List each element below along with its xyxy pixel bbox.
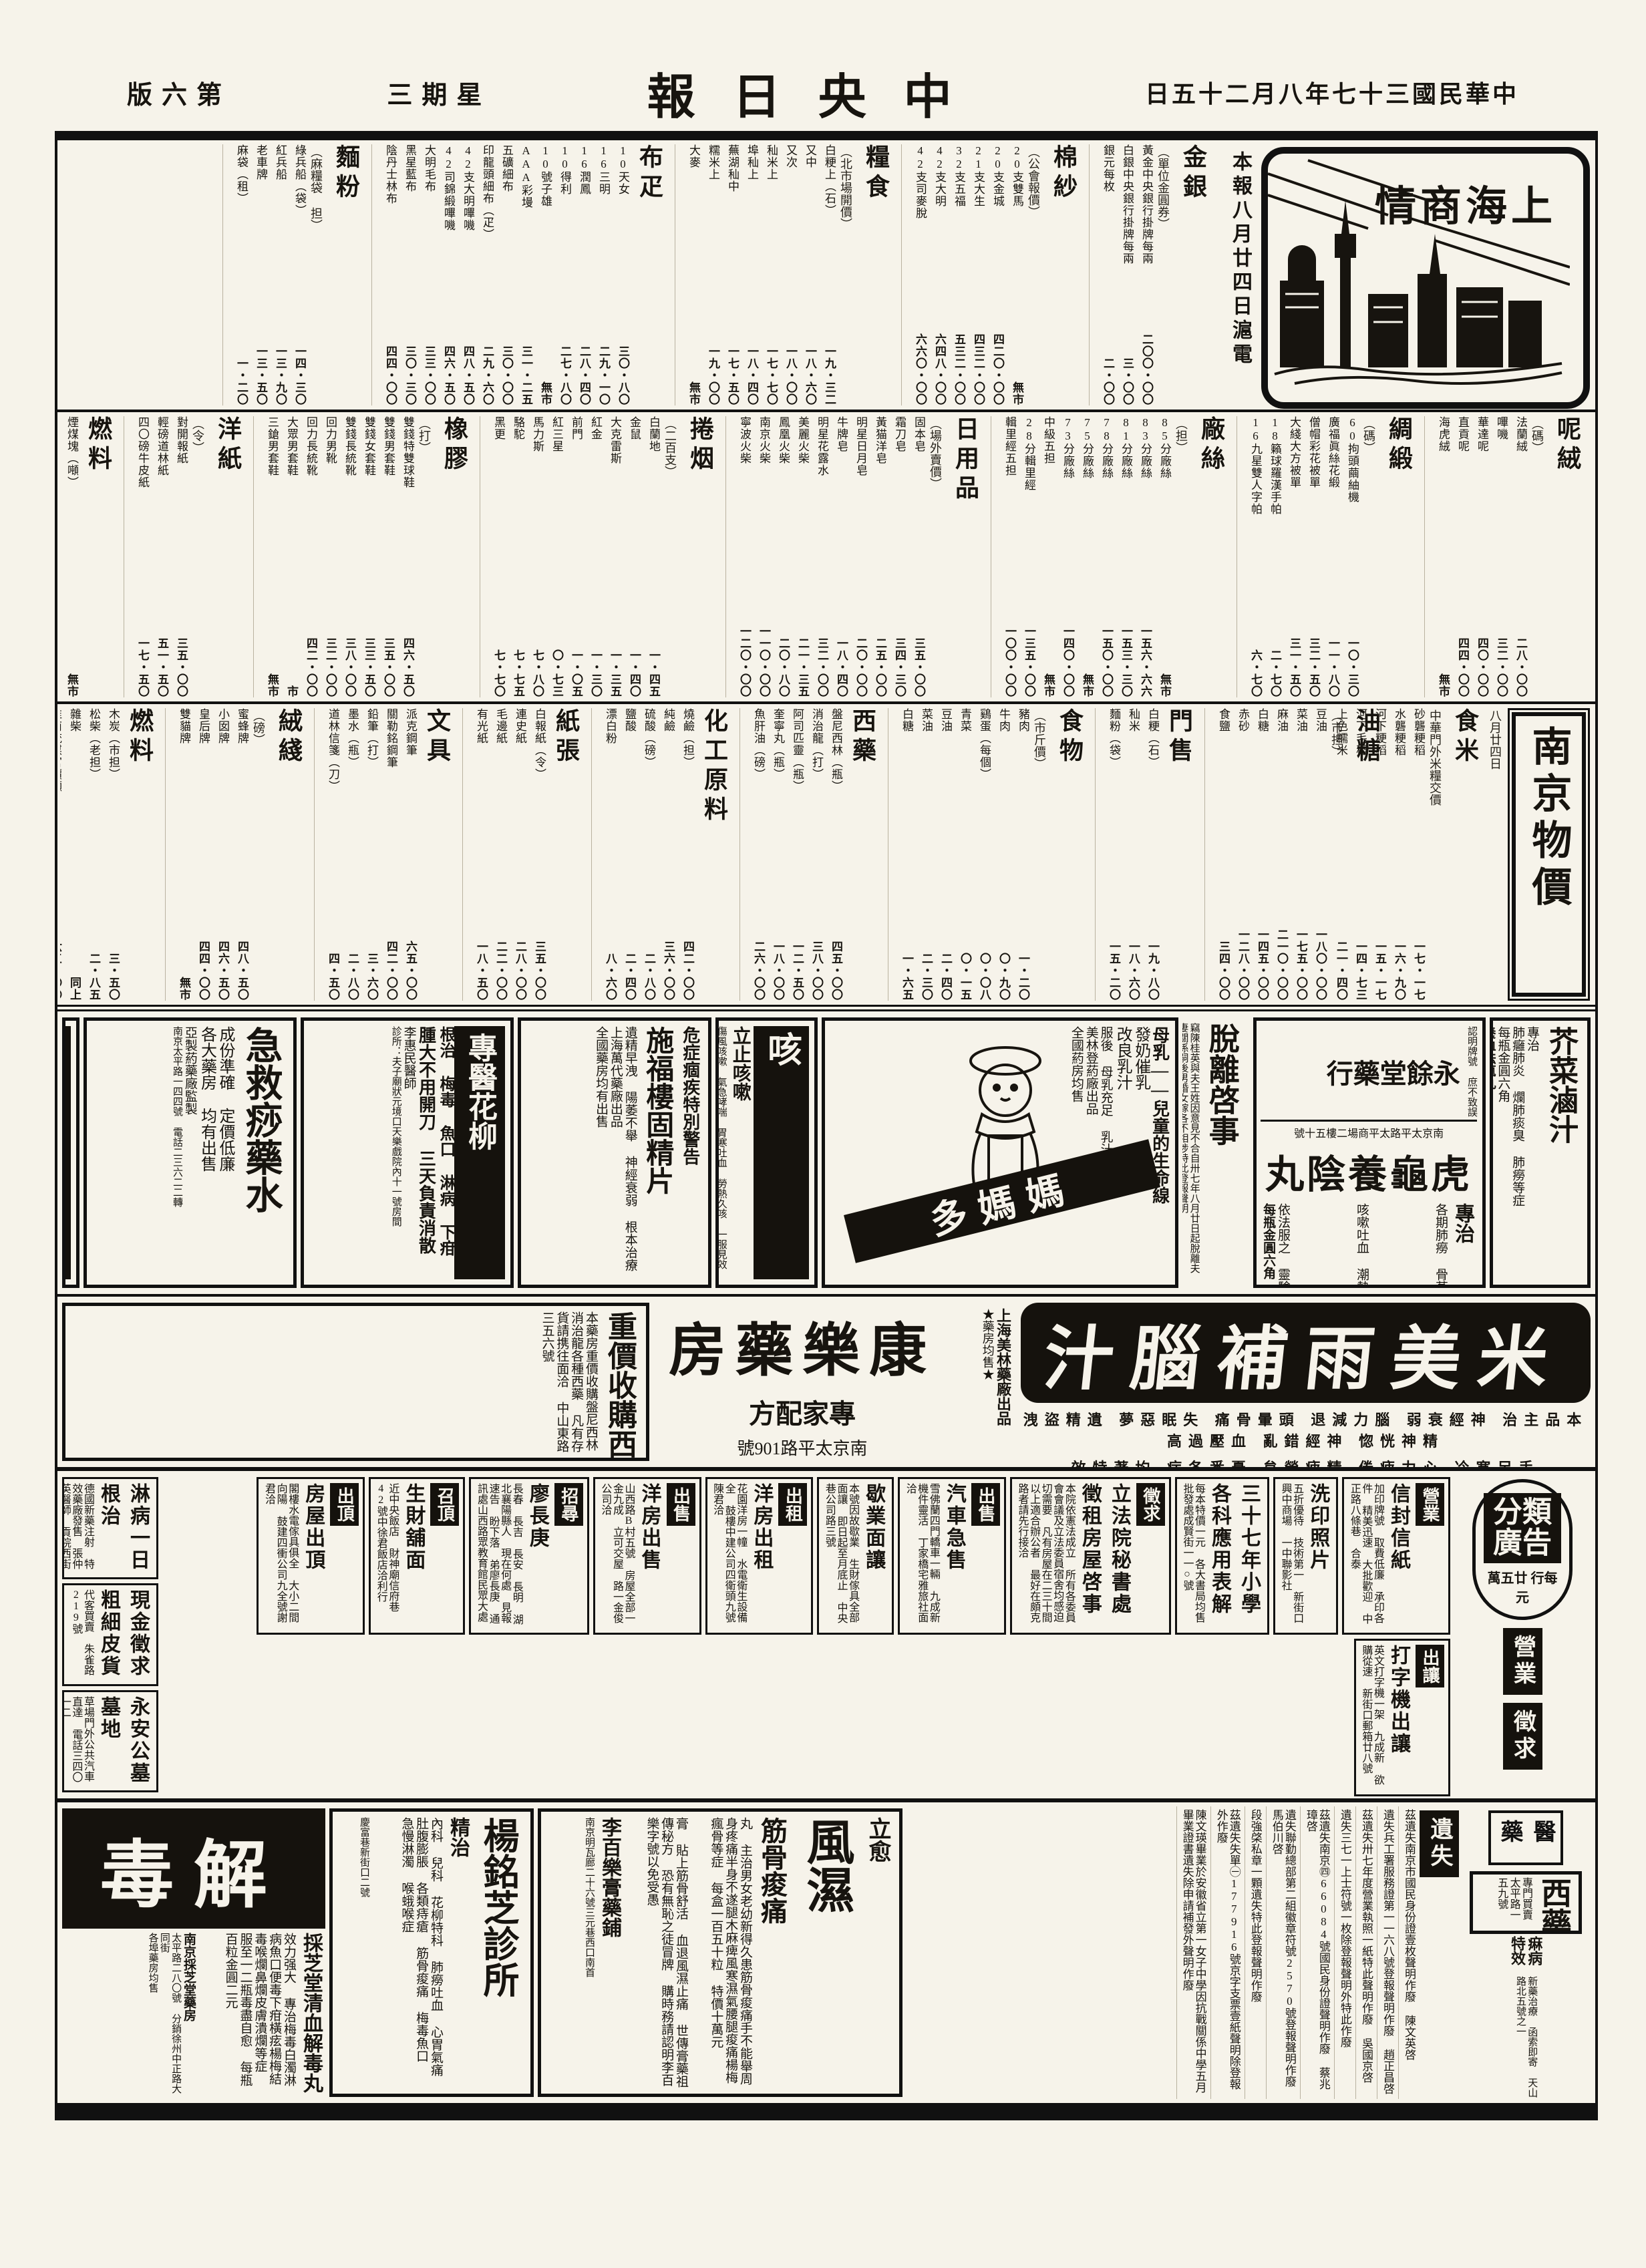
kangle-name: 康樂藥房 [659,1303,946,1387]
masthead: 第六版 星期三 中央日報 中華民國三十七年八月二十五日 [127,59,1519,126]
commodity-price: 三五・〇〇 [376,637,394,697]
commodity-name: 明星花露水 [810,416,828,476]
commodity-price: 一四五・〇〇 [1250,929,1268,1001]
commodity-price: 三三・〇〇 [417,345,435,406]
commodity-price: 三五・〇〇 [907,637,925,697]
commodity-price: 二・八五 [81,953,100,1001]
commodity-name: 麵粉（袋） [1102,708,1120,768]
commodity-price: 一七・五〇 [130,637,148,697]
ad-vd-cure-all: 花柳淋濁 包治 根治 魚口 淋濁 梅毒 下疳 睾丸炎 急慢淋濁當天止濁 德國藥品… [62,1017,79,1288]
market-section-items: 黃金中央銀行掛牌每兩二〇〇・〇〇白銀中央銀行掛牌每兩三・〇〇銀元每枚二・〇〇 [1095,144,1153,406]
classified-body: 雪佛蘭四門轎車一輛 九成新 機件靈活 丁家橋宅雅旅社面洽 [904,1483,939,1629]
market-section: 捲烟（二百支）白蘭地一・四五金鼠一・四〇大克雷斯一・三五紅金一・三〇前門一・〇五… [480,416,725,697]
price-item: 蕪湖秈中一七・五〇 [720,144,738,406]
commodity-name: 魚肝油（磅） [746,708,764,780]
commodity-name: 直貢呢 [1450,416,1468,452]
commodity-name: 煙煤塊（噸） [60,416,77,488]
classified-cell: 歇業面讓本號因故歇業 生財傢具全部面讓 即日起至月底止 中央巷公司路三號 [817,1477,894,1635]
nanjing-price-box: 南京物價 八月廿四日 食米 中華門外米糧交價 砂礱粳稻一七・一七水礱粳稻一六・九… [1392,708,1593,1001]
price-item: 菜油一七五・〇〇 [1289,708,1307,1001]
classified-cell: 召頂生財舖面近中央飯店 財神廟信府巷42號中徐君飯店洽利行 [369,1477,465,1635]
xiyao-addr: 太平路一五九號 [1495,1877,1520,1928]
commodity-name: 豆油 [1308,708,1326,732]
price-item: 煙煤塊（噸）無市 [60,416,77,697]
commodity-name: 16潤鳳 [572,144,590,195]
commodity-price: 四二・〇〇 [675,941,693,1001]
market-section-title: 紙張 [548,708,583,1001]
price-item: 20支金城四二〇・〇〇 [985,144,1003,406]
commodity-price: 一四・七三 [1348,941,1366,1001]
commodity-name: 鷄蛋（每個） [972,708,990,780]
commodity-price: 六・七〇 [1243,649,1261,697]
classified-title: 打字機出讓 [1383,1645,1413,1790]
market-section-note: （麻糧袋 担） [307,146,325,404]
commodity-price: 一一・八〇 [1321,637,1339,697]
commodity-name: 關勒銘鋼筆 [379,708,397,768]
ad-jiecai-luzhi: 芥菜滷汁 專治 肺癰肺炎 爛肺痰臭 肺癆等症 每瓶金圓六角 養血祛瘋丸 專治 筋… [1490,1017,1591,1288]
classified-body: 德國新藥注射 特效藥廠發售 張仲英醫師 貢院西街87號 [62,1483,94,1573]
commodity-name: 木炭（市担） [101,708,119,780]
nanjing-rice-items: 砂礱粳稻一七・一七水礱粳稻一六・九〇河下粳稻一五・一七河下毛稻一四・七三上色糯米… [1328,708,1425,1001]
brain-tonic-banner: 米美雨補腦汁 [1021,1303,1591,1403]
price-item: 陰丹士林布四四・〇〇 [378,144,396,406]
commodity-name: 菜油 [1289,708,1307,732]
mamado-slogan: 母乳——兒童的生命線 [1150,1026,1170,1279]
lost-notice: 陳文瑛畢業於安徽省立第一女子中學因抗戰關係中學五月畢業證書遺失除申請補發外聲明作… [1176,1806,1210,2099]
market-sections-row1: 金銀（單位金圓券）黃金中央銀行掛牌每兩二〇〇・〇〇白銀中央銀行掛牌每兩三・〇〇銀… [60,144,1218,406]
commodity-price: 二〇・八〇 [771,637,789,697]
commodity-name: 大麥 [681,144,699,168]
commodity-name: 黃金中央銀行掛牌每兩 [1134,144,1152,265]
commodity-name: 81分廠絲 [1114,416,1132,479]
market-section-title: 捲烟 [683,416,717,697]
price-item: 豆油一八〇・〇〇 [1308,708,1326,1001]
zhuanyi-title: 專醫花柳 [454,1026,505,1279]
market-section: 食物（市斤價）豬肉一・二〇牛肉〇・九〇鷄蛋（每個）〇・〇八青菜〇・一五豆油二・四… [888,708,1095,1001]
market-section-note: （單位金圓券） [1154,146,1172,404]
classified-title: 永安公墓 墓地 [94,1696,152,1786]
classified-cell: 招尋廖長庚長春 長吉 長安 長明 湖北襄陽縣人 現在何處 見報速告 盼下落 弟廖… [469,1477,589,1635]
market-section-items: 固本皂三五・〇〇霜刀皂三四・三〇黃猫洋皂二五・〇〇明星日月皂二〇・〇〇牛牌皂一八… [731,416,925,697]
lost-notice: 茲遺失卅七年度營業執照一紙特此聲明作廢 吳國京啓 [1355,1806,1377,2099]
commodity-price: 三二・〇〇 [318,637,336,697]
classified-left-cell: 淋病一日根治德國新藥注射 特效藥廠發售 張仲英醫師 貢院西街87號 [62,1477,158,1579]
market-sections-row3: 油糖（市担）豆油一八〇・〇〇菜油一七五・〇〇麻油二一〇・〇〇白糖一四五・〇〇赤砂… [60,708,1392,1001]
commodity-name: 南京火柴 [752,416,770,464]
jijiu-title: 急救痧藥水 [234,1026,288,1279]
tuoli-body: 竊陳桂英與夫王姓因意見不合自卅七年八月廿日起脫離夫妻關係嗣後男婚女嫁各不相涉特此… [1182,1023,1200,1283]
commodity-price: 一〇・三〇 [1340,637,1358,697]
price-item: 10號子雄無市 [533,144,551,406]
commodity-price: 二〇〇・〇〇 [1134,333,1152,406]
ad-brain-tonic: 米美雨補腦汁 本品主治 神經衰弱 腦力減退 頭暈骨痛 失眠惡夢 遺精盜洩 精神恍… [1021,1303,1591,1462]
fengshi-big2: 筋骨痠痛 [752,1817,791,2088]
classified-rate-value: 每行 廿五萬元 [1482,1567,1562,1606]
issue-date: 中華民國三十七年八月二十五日 [1145,75,1519,110]
commodity-name: 黑更 [486,416,504,440]
lost-notice: 遺失三七一上士符號一枚除登報聲明外特此作廢 [1334,1806,1355,2099]
commodity-price: 四三二・〇〇 [966,333,984,406]
ad-band-2: 米美雨補腦汁 本品主治 神經衰弱 腦力減退 頭暈骨痛 失眠惡夢 遺精盜洩 精神恍… [57,1297,1595,1472]
classified-title: 洗印照片 [1303,1483,1332,1629]
market-section: 橡膠（打）雙錢特雙球鞋四六・五〇雙錢男套鞋三五・〇〇雙錢女套鞋三三・五〇雙錢長統… [253,416,480,697]
market-section-items: 白粳（石）一九・八〇秈米一八・六〇麵粉（袋）一五・二〇 [1101,708,1159,1001]
fengshi-gao: 膏 貼上筋骨舒活 血退風濕止痛 世傳膏藥祖傳秘方 恐有無恥之徒冒牌 購時務請認明… [624,1817,688,2088]
price-item: 海虎絨無市 [1431,416,1449,697]
lost-notices: 茲遺失南京市國民身份證壹枚聲明作廢 陳文英啓遺失兵工署服務證第一一六八號登報聲明… [904,1806,1420,2099]
commodity-price: 四八・五〇 [456,345,474,406]
market-section-note: （打） [416,418,433,696]
hugu-note: 依法服之 靈驗如神 [1275,1203,1290,1288]
classified-body: 近中央飯店 財神廟信府巷42號中徐君飯店洽利行 [375,1483,398,1629]
price-item: 白粳上（石）一九・三二 [817,144,835,406]
commodity-price: 一・四〇 [622,649,640,697]
ad-separation-notice: 脫離啓事 竊陳桂英與夫王姓因意見不合自卅七年八月廿日起脫離夫妻關係嗣後男婚女嫁各… [1182,1017,1249,1288]
market-section-items: 盤尼西林（瓶）四五・〇〇消治龍（打）三八・〇〇阿司匹靈（瓶）一二・五〇奎寧丸（瓶… [746,708,842,1001]
hugu-product: 虎龜養陰丸 [1261,1143,1477,1199]
market-section-items: 法蘭絨二八・〇〇嗶嘰三二・〇〇華達呢四〇・〇〇直貢呢四四・〇〇海虎絨無市 [1430,416,1527,697]
commodity-price: 無市 [681,381,699,406]
commodity-name: 五礦細布 [494,144,512,192]
commodity-name: 又中 [798,144,816,168]
market-section: 棉紗（公會報價）20支雙馬無市20支金城四二〇・〇〇21支大生四三二・〇〇32支… [901,144,1089,406]
jijiu-maker: 亞製葯藥廠監製 [182,1026,197,1279]
market-section-note: （場外賣價） [927,418,944,696]
price-item: 大明毛布三三・〇〇 [417,144,435,406]
market-section-note: （令） [189,418,206,696]
classified-label: 招尋 [554,1483,583,1526]
price-item: 黃金中央銀行掛牌每兩二〇〇・〇〇 [1134,144,1152,406]
nanjing-note: 中華門外米糧交價 [1426,709,1444,999]
commodity-price: 三〇・八〇 [611,345,629,406]
commodity-name: 60拘頭繭紬機 [1340,416,1358,503]
market-section: 綢緞（碼）60拘頭繭紬機一〇・三〇廣福眞絲花緞一一・八〇僧帽彩花被單三二・五〇大… [1237,416,1424,697]
commodity-name: 白粳上（石） [817,144,835,216]
cough-title: 立止咳嗽 [727,1026,754,1279]
price-item: 麻油二一〇・〇〇 [1269,708,1287,1001]
commodity-price: 一九・〇〇 [701,345,719,406]
commodity-price: 三四・〇〇 [1211,941,1229,1001]
tab-business: 營業 [1503,1628,1542,1695]
price-item: 10天女三〇・八〇 [611,144,629,406]
market-section-note: （公會報價） [1025,146,1042,404]
price-item: 青菜〇・一五 [953,708,971,1001]
commodity-price: 二八・〇〇 [508,941,526,1001]
price-item: 大麥無市 [681,144,699,406]
price-item: 松柴（老担）二・八五 [81,708,100,1001]
cough-body: 傷風咳嗽 氣急哮喘 胃寒吐血 勞熱久咳 一服見效 [715,1026,727,1279]
classifieds-grid: 營業信封信紙加印牌號 取費低廉 承印各件 精美迅速 大批歡迎 中正路八條巷 合泰… [160,1475,1452,1794]
market-section-items: 煙煤塊（噸）無市烏炭（担）七・五〇煤球（担）五・六〇白炭（担）三六・七〇 [60,416,78,697]
classified-cell: 洗印照片五折優待 技術第一 新街口興中商場 一中聯影社 [1273,1477,1338,1635]
market-section-items: 木炭（市担）三・五〇松柴（老担）二・八五雜柴同上淮南統煤官價噸六三・〇〇汽油（加… [60,708,120,1001]
market-sections-row2: 呢絨（碼）法蘭絨二八・〇〇嗶嘰三二・〇〇華達呢四〇・〇〇直貢呢四四・〇〇海虎絨無… [60,416,1593,697]
commodity-price: 二・〇〇 [1096,357,1114,406]
commodity-name: 28分輯里經 [1017,416,1035,491]
commodity-price: 三〇・三〇 [397,345,416,406]
commodity-price: 同上 [62,977,80,1001]
commodity-price: 五三二・〇〇 [947,333,965,406]
price-item: 墨水（瓶）二・八〇 [340,708,358,1001]
commodity-name: 老車牌 [249,144,267,180]
mabing-title: 痳病特效 [1509,1936,1543,1976]
price-item: 又中一八・六〇 [798,144,816,406]
shifulou-product: 施福樓固精片 [637,1026,678,1279]
commodity-price: 一五・一七 [1367,941,1385,1001]
commodity-name: 牛牌皂 [829,416,847,452]
commodity-name: 鉛筆（打） [359,708,377,768]
commodity-price: 一・三五 [603,649,621,697]
market-section-items: 對開報紙三五・〇〇輕磅道林紙五一・五〇四〇磅牛皮紙一七・五〇 [130,416,188,697]
commodity-name: 黃猫洋皂 [868,416,886,464]
price-item: 白粳（石）一九・八〇 [1140,708,1158,1001]
commodity-name: 豬肉 [1011,708,1029,732]
price-item: 雙錢長統靴三八・〇〇 [337,416,355,697]
lost-notice: 茲遺失南京㊃66084號國民身份證聲明作廢 蔡兆璋啓 [1300,1806,1334,2099]
commodity-name: 食鹽 [1211,708,1229,732]
commodity-name: 菜油 [914,708,932,732]
price-item: 直貢呢四四・〇〇 [1450,416,1468,697]
ad-kangle-pharmacy: 康樂藥房 專家配方 南京太平路109號 [653,1303,951,1462]
lost-notice: 茲遺失失單㊀177916號京字支票壹紙聲明除登報外作廢 [1210,1806,1245,2099]
shanghai-report-box: 上海商情 本報八月廿四日滬電 [1218,144,1593,406]
commodity-price: 一三・五〇 [249,345,267,406]
fengshi-addr: 南京明瓦廊二十六號三元巷西口南首 [583,1817,595,2088]
ad-buy-western-medicine: 重價收購西藥 本藥房重價收購盤尼西林消治龍各種西藥 凡有存貨請携往面洽 中山東路… [62,1303,649,1462]
market-section-note: （市斤價） [1031,709,1048,999]
price-item: 白糖一四五・〇〇 [1250,708,1268,1001]
commodity-name: 奎寧丸（瓶） [766,708,784,780]
commodity-price: 一五六・六六 [1133,625,1151,697]
price-item: 河下粳稻一五・一七 [1367,708,1385,1001]
commodity-name: 有光紙 [469,708,487,744]
commodity-name: 18籟球羅漢手帕 [1263,416,1281,515]
price-item: 秈米上一七・七〇 [759,144,777,406]
classified-title: 生財舖面 [398,1483,428,1629]
price-item: 輕磅道林紙五一・五〇 [150,416,168,697]
commodity-name: 連史紙 [508,708,526,744]
caizhitang-addr: 太平路二八〇號 分銷徐州中正路大同街 [158,1933,182,2097]
commodity-name: 前門 [564,416,582,440]
price-item: 小囡牌四六・五〇 [210,708,228,1001]
price-item: AAA彩墁三一・二五 [514,144,532,406]
commodity-name: 水礱粳稻 [1387,708,1405,756]
commodity-name: 牛肉 [991,708,1009,732]
price-item: 菜油二・三〇 [914,708,932,1001]
commodity-price: 三六・〇〇 [656,941,674,1001]
classified-label: 出租 [778,1483,807,1526]
price-item: 派克鋼筆六五・〇〇 [398,708,416,1001]
cough-big-char: 咳 [754,1026,809,1279]
price-item: 阿司匹靈（瓶）一二・五〇 [785,708,803,1001]
classified-cell: 出售汽車急售雪佛蘭四門轎車一輛 九成新 機件靈活 丁家橋宅雅旅社面洽 [898,1477,1006,1635]
price-item: 魚肝油（磅）二六・〇〇 [746,708,764,1001]
commodity-name: 42支司麥脫 [908,144,926,219]
commodity-name: 16九星雙人字帕 [1243,416,1261,515]
price-item: 豬肉一・二〇 [1011,708,1029,1001]
commodity-name: 固本皂 [907,416,925,452]
commodity-price: 無市 [533,381,551,406]
classified-cell: 營業信封信紙加印牌號 取費低廉 承印各件 精美迅速 大批歡迎 中正路八條巷 合泰 [1342,1477,1450,1635]
commodity-price: 一五・二〇 [1102,941,1120,1001]
classified-label: 出讓 [1416,1645,1444,1687]
commodity-price: 一八・〇〇 [778,345,796,406]
classified-label: 出頂 [330,1483,359,1526]
price-item: 16三明二九・一〇 [591,144,609,406]
market-section-title: 呢絨 [1550,416,1585,697]
minao-maker-note: ★藥房均售★ [981,1308,995,1456]
market-section-title: 布疋 [632,144,667,406]
zhuanyi-claim: 腫大不用開刀 三天負責消散 [416,1026,436,1279]
price-item: 固本皂三五・〇〇 [907,416,925,697]
commodity-price: 三四・三〇 [887,637,905,697]
price-item: 麻袋（租）一・二〇 [229,144,247,406]
price-item: 42司錦緞嗶嘰四六・五〇 [436,144,454,406]
price-item: 麵粉（袋）一五・二〇 [1102,708,1120,1001]
commodity-price: 二・三〇 [914,953,932,1001]
commodity-name: 42司錦緞嗶嘰 [436,144,454,231]
commodity-name: 消治龍（打） [804,708,822,780]
classified-body: 每本特價一元 各大書局均售 批發處成賢街一一○號 [1181,1483,1204,1629]
tab-lost: 遺失 [1420,1810,1459,1877]
price-item: 18籟球羅漢手帕二・七〇 [1263,416,1281,697]
commodity-price: 一二・五〇 [785,941,803,1001]
hugu-spec: 專治 [1448,1203,1477,1288]
commodity-name: 河下粳稻 [1367,708,1385,756]
price-item: 鳳凰火柴二〇・八〇 [771,416,789,697]
commodity-price: 三二・〇〇 [810,637,828,697]
commodity-name: 21支大生 [966,144,984,207]
brain-tonic-line2: 手足寒冷 心力疲倦 精疲勞怠 憂悉各症 均著特效 [1021,1456,1591,1472]
commodity-price: 四四・〇〇 [1450,637,1468,697]
commodity-name: 10天女 [611,144,629,195]
commodity-name: 又次 [778,144,796,168]
classified-title: 歇業面讓 [858,1483,888,1629]
commodity-price: 三二・五〇 [1301,637,1319,697]
price-item: 大綫大方被單三一・五〇 [1282,416,1300,697]
price-item: 10得利二七・八〇 [552,144,570,406]
commodity-price: 三・五〇 [101,953,119,1001]
market-section-items: 蜜蜂牌四八・五〇小囡牌四六・五〇皇后牌四四・〇〇雙貓牌無市 [171,708,249,1001]
hugu-list2: 咳嗽吐血 潮熱顴紅 咽喉失音 肺痿胸脇悶痛 心跳食少 乾血女癆 一切虛癆串核 [1290,1203,1369,1288]
bottom-rail: 醫藥 西藥 專門買賣 太平路一五九號 痳病特效 新藥治療 函索即寄 天山路北五號… [1459,1806,1593,2099]
hugu-list1: 各期肺癆 骨蒸盜汗 口乾舌燥 爛肺痰臭 氣急失眠 腰痠背痛 頭眩目花 百日童癆 … [1369,1203,1448,1288]
commodity-price: 二九・六〇 [475,345,493,406]
commodity-name: 20支金城 [985,144,1003,207]
commodity-name: 16三明 [591,144,609,195]
price-item: 綠兵船（袋）一四・三〇 [287,144,305,406]
commodity-price: 無市 [1075,673,1093,697]
commodity-price: 一三五・〇〇 [1017,625,1035,697]
commodity-price: 二〇・〇〇 [848,637,866,697]
classifieds-rail: 分類廣告 每行 廿五萬元 營業 徵求 [1452,1475,1593,1794]
commodity-name: 白粳（石） [1140,708,1158,768]
commodity-price: 無市 [1005,381,1023,406]
market-section-items: 白蘭地一・四五金鼠一・四〇大克雷斯一・三五紅金一・三〇前門一・〇五紅三星〇・七三… [486,416,660,697]
market-section-note: （碼） [1360,418,1377,696]
ad-yangmingzhi-clinic: 楊銘芝診所 精治 內科 兒科 花柳特科 肺癆吐血 心胃氣痛 肚腹膨脹 各類痔瘡 … [329,1808,534,2097]
commodity-name: 大明毛布 [417,144,435,192]
commodity-price: 六三・〇〇 [60,941,61,1001]
commodity-name: 美麗火柴 [790,416,808,464]
shifulou-maker: 上海萬代藥廠出品 [608,1026,623,1279]
price-item: 雙錢男套鞋三五・〇〇 [376,416,394,697]
commodity-name: 法蘭絨 [1508,416,1526,452]
commodity-price: 〇・七三 [544,649,562,697]
bottom-ad-band: 醫藥 西藥 專門買賣 太平路一五九號 痳病特效 新藥治療 函索即寄 天山路北五號… [57,1802,1595,2103]
price-item: 金鼠一・四〇 [622,416,640,697]
price-item: 盤尼西林（瓶）四五・〇〇 [824,708,842,1001]
ad-xiyao-dealer: 西藥 專門買賣 太平路一五九號 [1470,1871,1582,1934]
commodity-name: 上色糯米 [1329,708,1347,756]
classified-body: 五折優待 技術第一 新街口興中商場 一中聯影社 [1279,1483,1303,1629]
classified-label: 召頂 [430,1483,459,1526]
commodity-price: 〇・九〇 [991,953,1009,1001]
commodity-name: 墨水（瓶） [340,708,358,768]
commodity-name: 陰丹士林布 [378,144,396,204]
classified-title: 三十七年小學各科應用表解 [1204,1483,1263,1629]
market-section-title: 糧食 [858,144,893,406]
classified-body: 花園洋房一幢 水電衛生設備全 鼓樓中建公司四衛頭九號陳君洽 [711,1483,747,1629]
commodity-price: 三一・二五 [514,345,532,406]
market-section-title: 文具 [420,708,454,1001]
commodity-name: AAA彩墁 [514,144,532,208]
commodity-price: 四〇・〇〇 [1470,637,1488,697]
jiecai-spec: 專治 [1524,1026,1539,1279]
price-item: 僧帽彩花被單三二・五〇 [1301,416,1319,697]
commodity-price: 三八・〇〇 [337,637,355,697]
commodity-name: 海虎絨 [1431,416,1449,452]
commodity-price: 一九・三二 [817,345,835,406]
ad-meilin-strip: 上海美林藥廠出品 ★藥房均售★ [955,1303,1017,1462]
commodity-name: 駱駝 [506,416,524,440]
commodity-name: 糯米上 [701,144,719,180]
price-item: 水礱粳稻一六・九〇 [1387,708,1405,1001]
price-item: 黑更七・七〇 [486,416,504,697]
market-section-title: 食物 [1052,708,1087,1001]
price-item: 20支雙馬無市 [1005,144,1023,406]
commodity-price: 四六・五〇 [436,345,454,406]
market-section-items: 豬肉一・二〇牛肉〇・九〇鷄蛋（每個）〇・〇八青菜〇・一五豆油二・四〇菜油二・三〇… [894,708,1029,1001]
market-section-title: 棉紗 [1046,144,1081,406]
market-section: 糧食（北市場開價）白粳上（石）一九・三二又中一八・六〇又次一八・〇〇秈米上一七・… [675,144,901,406]
price-item: 三鎗男套鞋無市 [260,416,278,697]
price-item: 牛肉〇・九〇 [991,708,1009,1001]
commodity-name: 嗶嘰 [1489,416,1507,440]
caizhitang-product: 採芝堂清血解毒丸 [296,1933,325,2097]
fengshi-big1: 風濕 [791,1817,861,2088]
classified-left-cell: 現金徵求 粗細皮貨代客買賣 朱雀路219號 [62,1583,158,1685]
commodity-name: 黑星藍布 [397,144,416,192]
price-item: 上色糯米二一・四〇 [1329,708,1347,1001]
price-item: 21支大生四三二・〇〇 [966,144,984,406]
market-section-title: 洋紙 [210,416,245,697]
price-item: 白蘭地一・四五 [641,416,659,697]
classified-cell: 出租洋房出租花園洋房一幢 水電衛生設備全 鼓樓中建公司四衛頭九號陳君洽 [705,1477,814,1635]
market-section-items: 燒鹼（担）四二・〇〇純鹼三六・〇〇硫酸（磅）二・八〇鹽酸二・四〇漂白粉八・六〇 [597,708,694,1001]
xiyao-note: 專門買賣 [1520,1877,1532,1928]
commodity-price: 二七・八〇 [552,345,570,406]
classified-label: 徵求 [1136,1483,1165,1526]
market-section-note: （北市場開價） [837,146,854,404]
price-item: 法蘭絨二八・〇〇 [1508,416,1526,697]
classified-title: 信封信紙 [1383,1483,1413,1629]
price-item: 42支大明六四八・〇〇 [927,144,945,406]
commodity-name: 松柴（老担） [81,708,100,780]
commodity-price: 三八・〇〇 [804,941,822,1001]
commodity-price: 一四・三〇 [287,345,305,406]
commodity-price: 三〇・〇〇 [494,345,512,406]
